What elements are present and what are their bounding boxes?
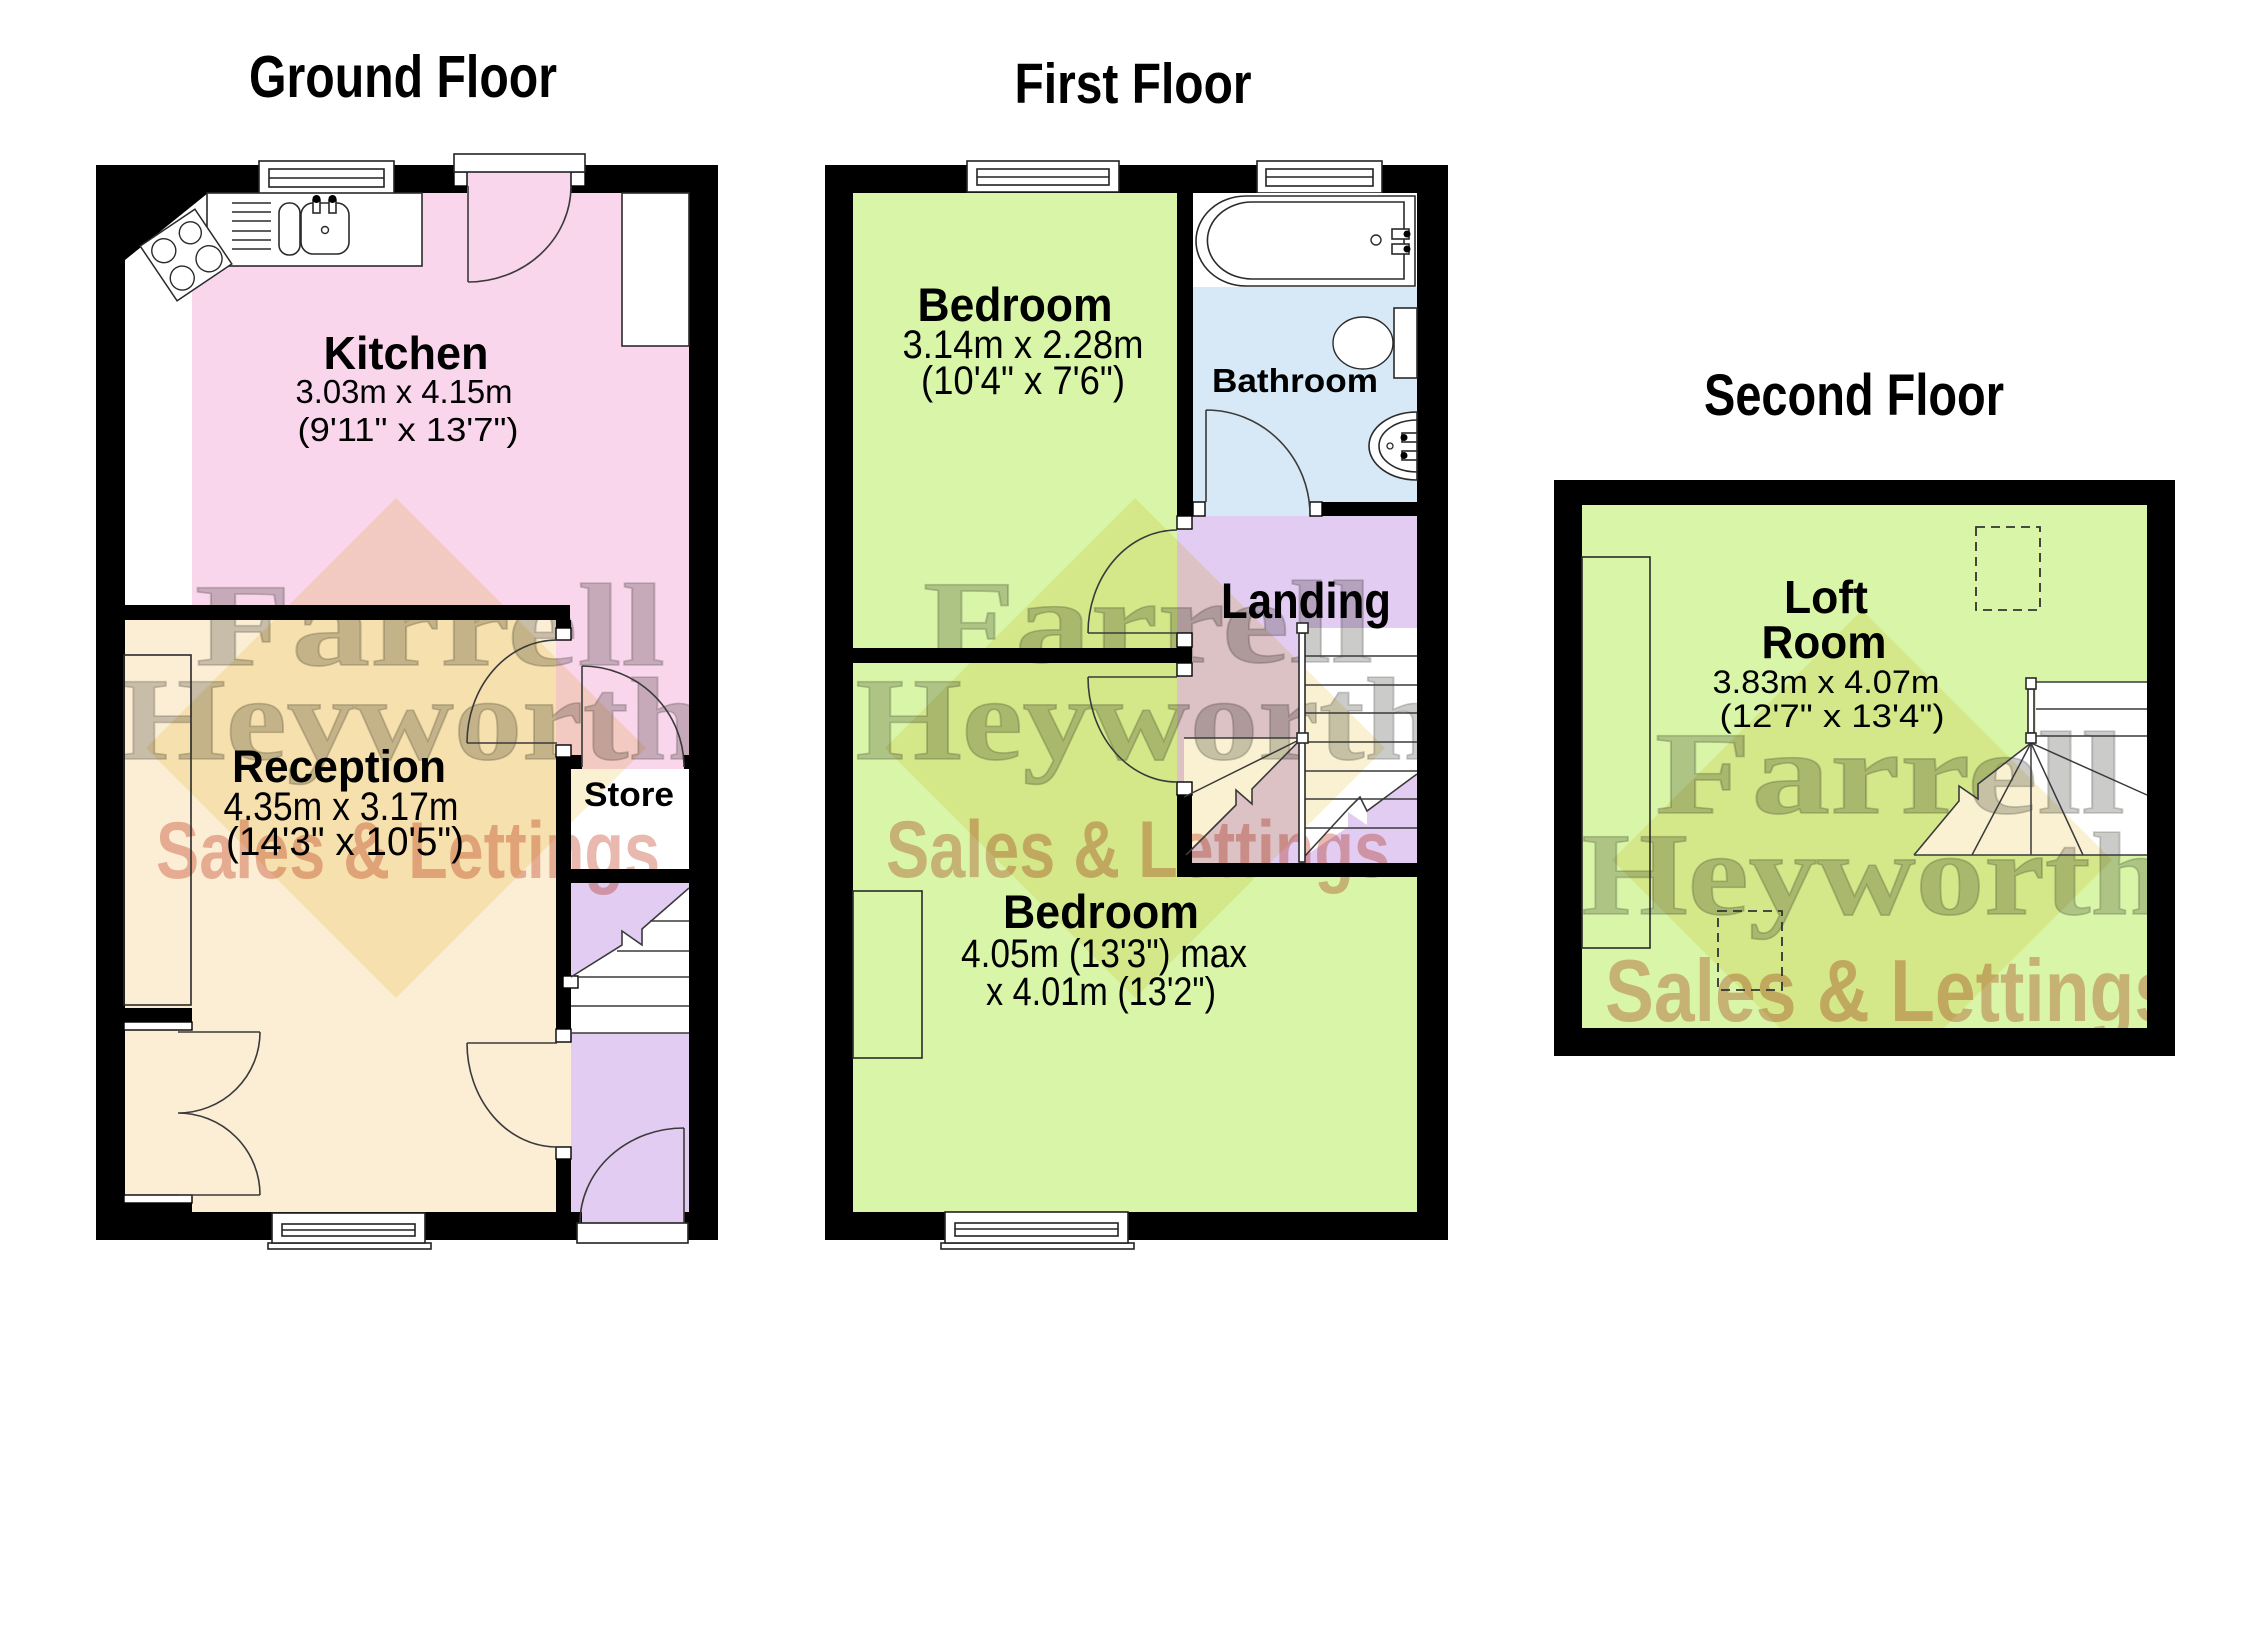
svg-text:3.03m x 4.15m: 3.03m x 4.15m: [296, 373, 513, 410]
svg-text:Sales & Lettings: Sales & Lettings: [886, 805, 1390, 895]
svg-text:Bedroom: Bedroom: [1003, 885, 1199, 938]
svg-text:(14'3" x 10'5"): (14'3" x 10'5"): [226, 820, 464, 864]
svg-text:Landing: Landing: [1221, 573, 1391, 629]
svg-text:Second Floor: Second Floor: [1704, 363, 2004, 428]
svg-text:Room: Room: [1762, 616, 1887, 668]
svg-text:x 4.01m (13'2"): x 4.01m (13'2"): [986, 970, 1216, 1014]
svg-text:Heyworth: Heyworth: [856, 654, 1441, 785]
svg-text:(9'11" x 13'7"): (9'11" x 13'7"): [298, 411, 519, 448]
svg-text:First Floor: First Floor: [1015, 52, 1252, 116]
svg-text:Sales & Lettings: Sales & Lettings: [1605, 941, 2175, 1040]
svg-text:Kitchen: Kitchen: [324, 327, 489, 379]
svg-text:Heyworth: Heyworth: [1582, 809, 2167, 940]
svg-text:Store: Store: [584, 776, 674, 814]
svg-text:3.83m x 4.07m: 3.83m x 4.07m: [1713, 664, 1940, 700]
svg-text:(10'4" x 7'6"): (10'4" x 7'6"): [921, 359, 1125, 403]
svg-text:Bathroom: Bathroom: [1212, 362, 1378, 399]
svg-text:(12'7" x 13'4"): (12'7" x 13'4"): [1720, 698, 1945, 734]
svg-text:Ground Floor: Ground Floor: [249, 44, 557, 110]
